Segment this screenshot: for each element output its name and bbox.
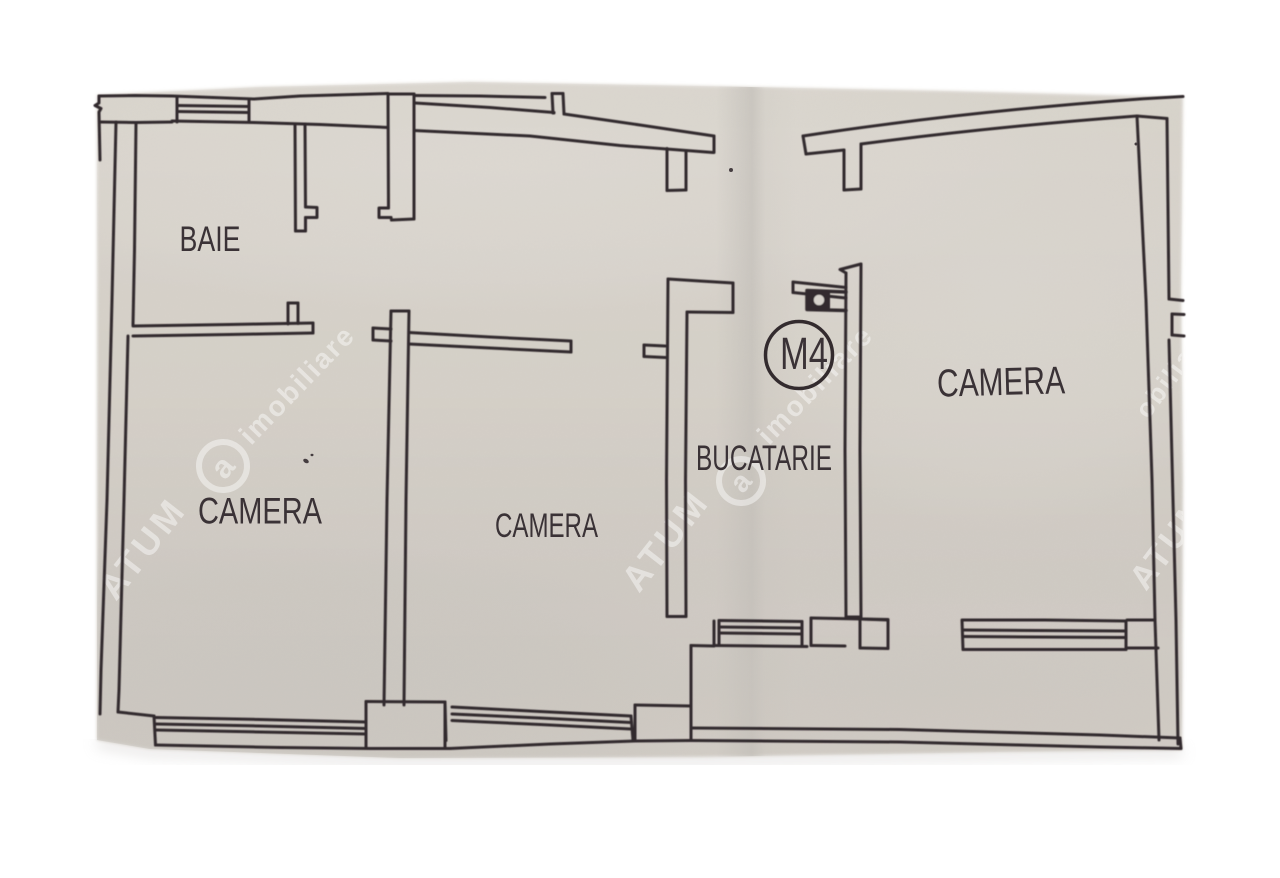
svg-text:BUCATARIE: BUCATARIE <box>696 439 832 478</box>
svg-text:CAMERA: CAMERA <box>936 359 1065 405</box>
svg-text:CAMERA: CAMERA <box>198 491 322 532</box>
svg-text:M4: M4 <box>780 328 828 379</box>
svg-text:BAIE: BAIE <box>180 220 241 259</box>
svg-text:CAMERA: CAMERA <box>495 507 598 545</box>
